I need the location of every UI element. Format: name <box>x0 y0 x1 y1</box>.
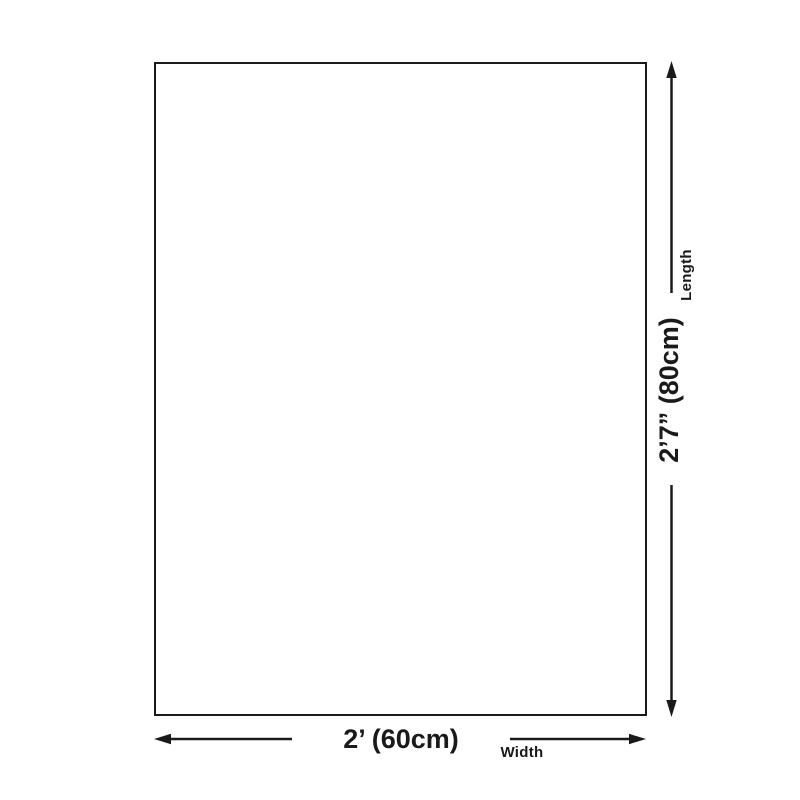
length-arrow-lower-icon <box>666 485 676 717</box>
product-outline-rectangle <box>154 62 647 716</box>
length-arrow-upper-icon <box>666 61 676 293</box>
length-label: Length <box>679 249 696 301</box>
dimension-diagram: Length 2’7” (80cm) 2’ (60cm) Width <box>0 0 800 800</box>
width-arrow-right-icon <box>510 734 646 744</box>
width-label: Width <box>472 745 572 762</box>
length-value: 2’7” (80cm) <box>655 317 685 463</box>
width-arrow-left-icon <box>154 734 292 744</box>
